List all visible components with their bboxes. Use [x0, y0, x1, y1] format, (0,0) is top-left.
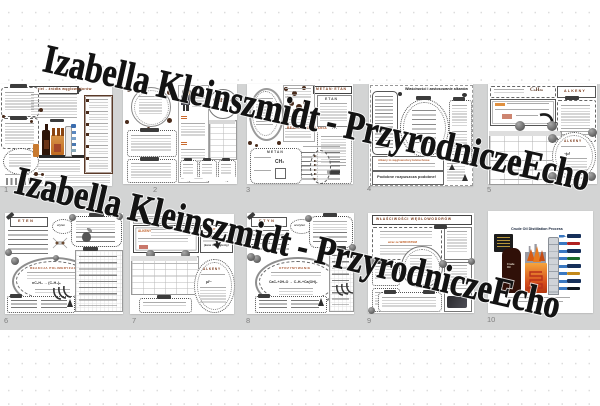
svg-text:Izabella Kleinszmidt - Przyrod: Izabella Kleinszmidt - PrzyrodniczeEcho — [11, 158, 565, 327]
svg-text:Izabella Kleinszmidt - Przyrod: Izabella Kleinszmidt - PrzyrodniczeEcho — [39, 36, 594, 199]
